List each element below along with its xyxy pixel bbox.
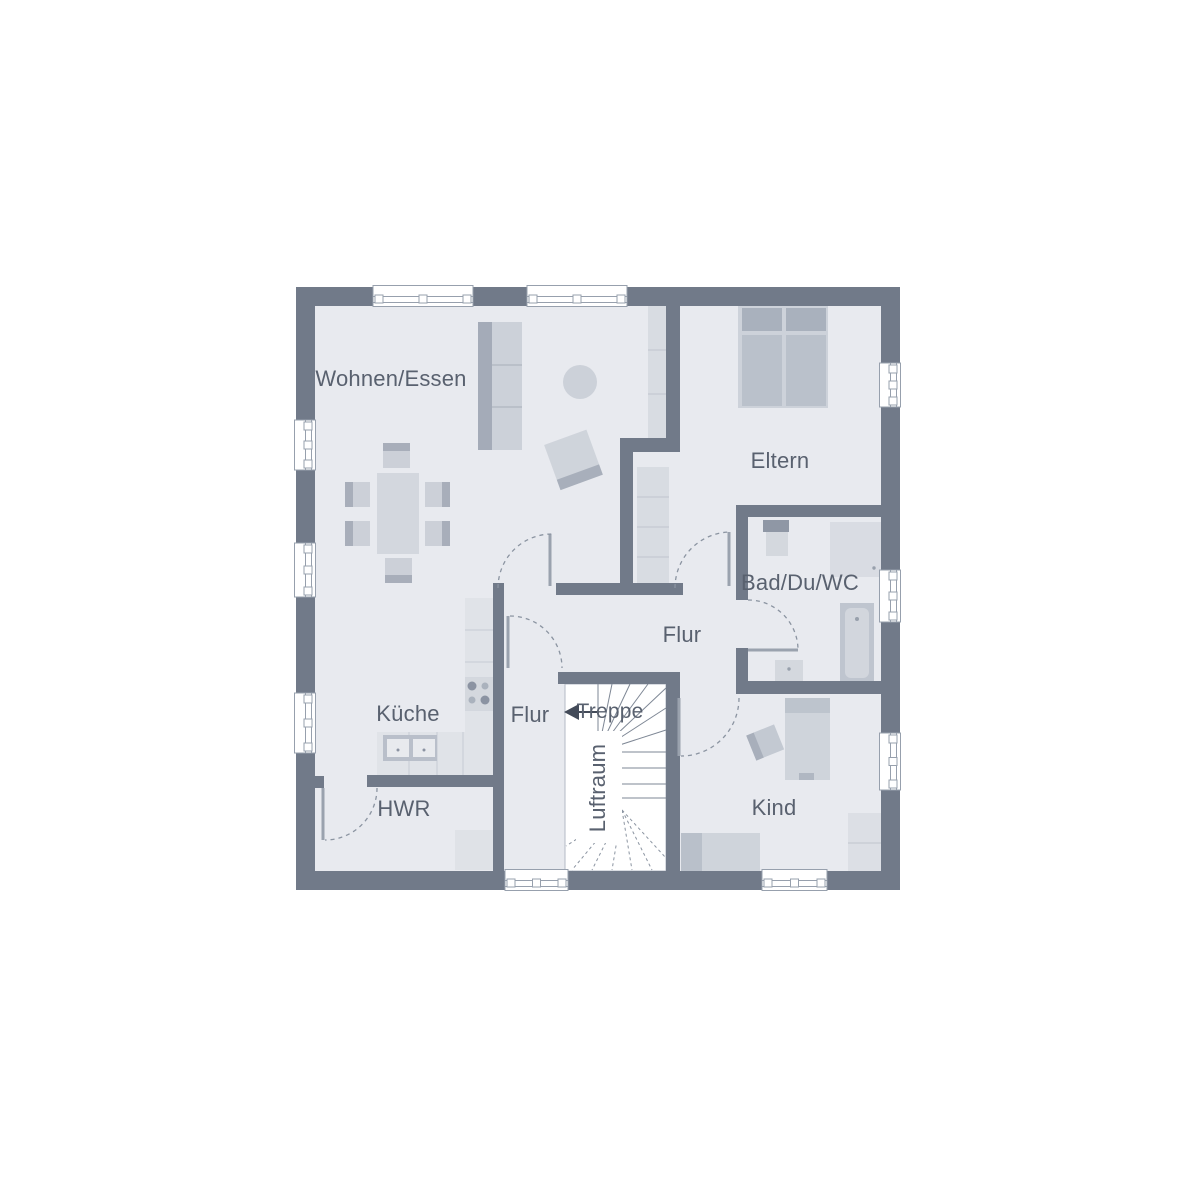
window — [505, 870, 568, 891]
room-label-flur-klein: Flur — [511, 702, 550, 728]
window — [880, 733, 901, 790]
dining-chair — [345, 482, 370, 507]
interior-wall — [315, 776, 324, 788]
window — [527, 286, 627, 307]
room-label-flur: Flur — [663, 622, 702, 648]
shower — [830, 522, 882, 577]
interior-wall — [493, 583, 504, 871]
room-label-wohnen-essen: Wohnen/Essen — [315, 366, 466, 392]
window — [880, 363, 901, 407]
interior-wall — [738, 681, 881, 694]
interior-wall — [738, 505, 881, 517]
room-label-treppe: Treppe — [577, 700, 644, 724]
sink — [763, 520, 789, 556]
interior-wall — [556, 583, 683, 595]
dining-chair — [385, 558, 412, 583]
room-label-bad-du-wc: Bad/Du/WC — [741, 570, 859, 596]
dining-chair — [425, 482, 450, 507]
room-label-luftraum: Luftraum — [585, 744, 611, 832]
window — [295, 420, 316, 470]
window — [762, 870, 827, 891]
interior-wall — [620, 438, 633, 595]
dining-table — [377, 473, 419, 554]
wc — [775, 660, 803, 682]
kitchen-sink — [383, 735, 437, 761]
window — [295, 693, 316, 753]
interior-wall — [666, 306, 680, 452]
hall-closet — [637, 467, 669, 585]
washing-machine — [455, 830, 493, 870]
single-bed — [681, 833, 760, 871]
floor-plan: Wohnen/Essen Eltern Bad/Du/WC Flur Flur … — [0, 0, 1200, 1200]
dining-chair — [425, 521, 450, 546]
room-label-kueche: Küche — [376, 701, 439, 727]
double-bed — [738, 303, 828, 408]
window — [880, 570, 901, 622]
sideboard — [478, 322, 522, 450]
interior-wall — [367, 775, 493, 787]
window — [295, 543, 316, 597]
closet — [848, 813, 881, 871]
room-label-hwr: HWR — [377, 796, 430, 822]
round-rug — [563, 365, 597, 399]
interior-wall — [558, 672, 680, 684]
floor-plan-drawing — [0, 0, 1200, 1200]
child-bed — [785, 698, 830, 780]
bathtub — [840, 603, 874, 683]
room-label-eltern: Eltern — [751, 448, 810, 474]
wardrobe — [648, 306, 666, 438]
window — [373, 286, 473, 307]
dining-chair — [345, 521, 370, 546]
dining-chair — [383, 443, 410, 468]
stove — [465, 678, 493, 710]
room-label-kind: Kind — [752, 795, 797, 821]
